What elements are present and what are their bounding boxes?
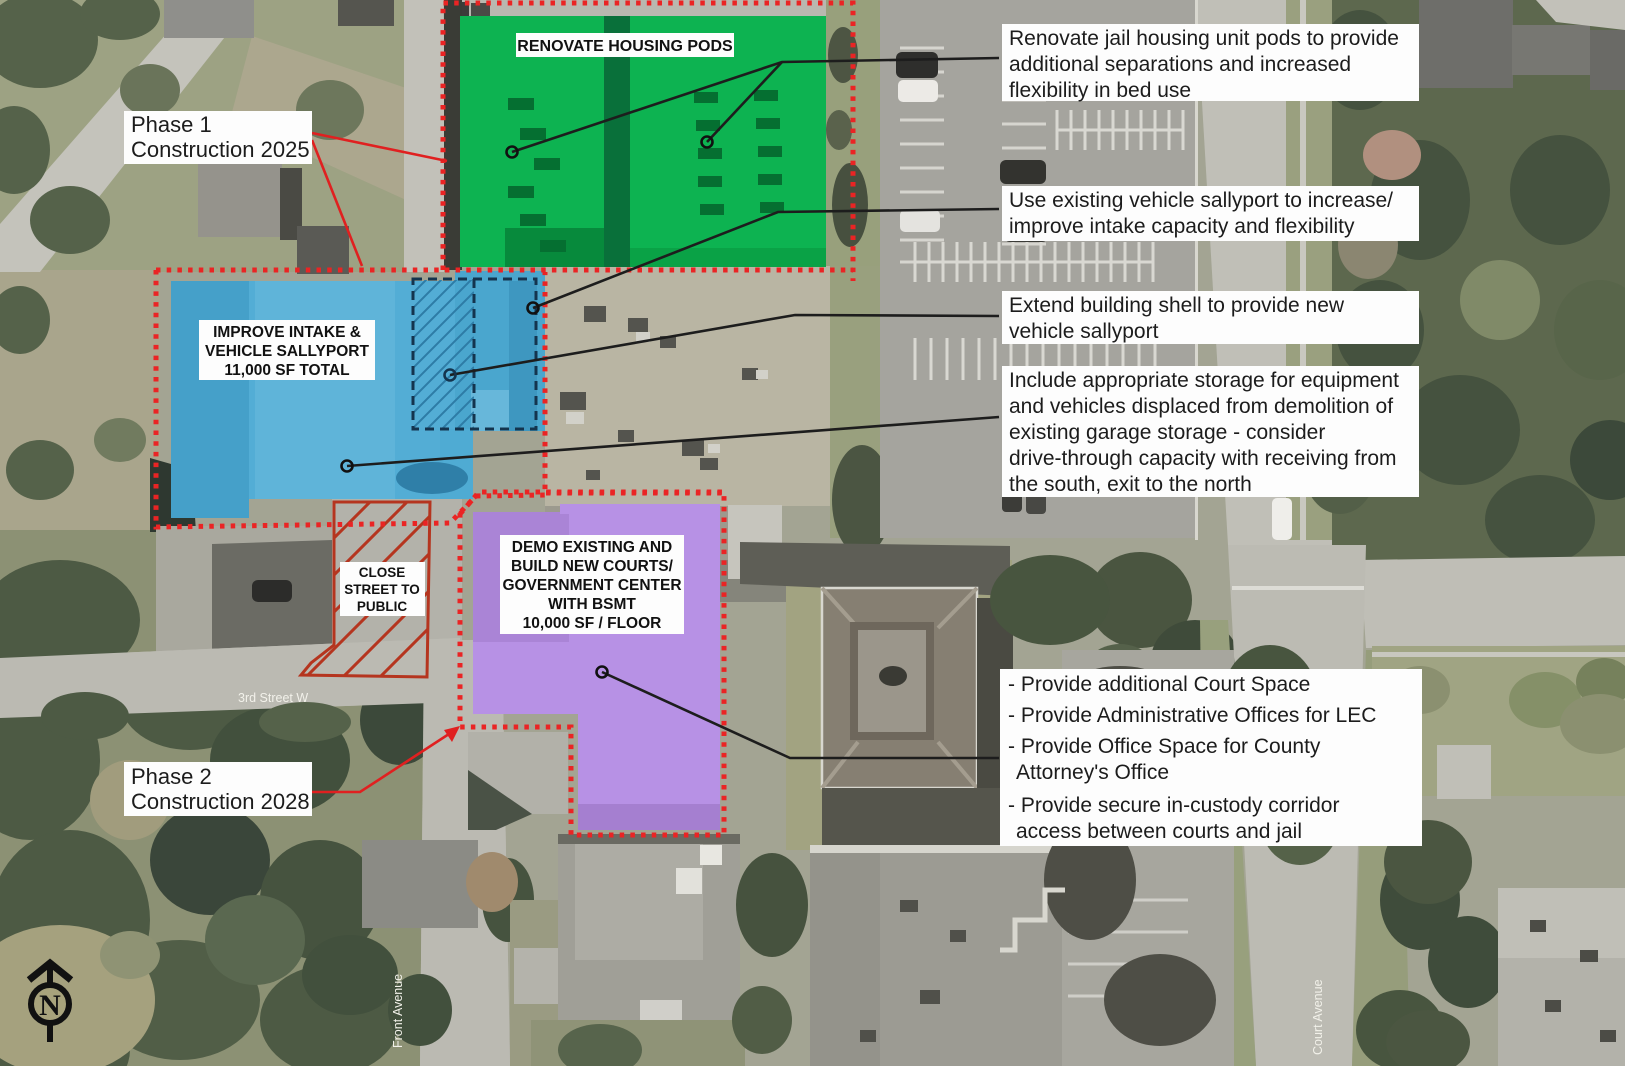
svg-text:improve intake capacity and fl: improve intake capacity and flexibility <box>1009 215 1355 238</box>
svg-text:PUBLIC: PUBLIC <box>357 599 408 614</box>
svg-text:Use existing vehicle sallyport: Use existing vehicle sallyport to increa… <box>1009 189 1393 212</box>
svg-text:N: N <box>39 989 61 1022</box>
svg-text:WITH BSMT: WITH BSMT <box>548 596 636 613</box>
svg-text:GOVERNMENT CENTER: GOVERNMENT CENTER <box>502 577 681 594</box>
svg-text:additional separations and inc: additional separations and increased <box>1009 53 1351 76</box>
svg-text:VEHICLE SALLYPORT: VEHICLE SALLYPORT <box>205 343 369 360</box>
svg-text:- Provide additional Court Spa: - Provide additional Court Space <box>1008 673 1310 696</box>
svg-text:access between courts and jail: access between courts and jail <box>1016 820 1302 843</box>
svg-text:flexibility in bed use: flexibility in bed use <box>1009 79 1191 102</box>
svg-text:CLOSE: CLOSE <box>359 565 406 580</box>
svg-text:RENOVATE HOUSING PODS: RENOVATE HOUSING PODS <box>517 38 733 55</box>
svg-text:BUILD NEW COURTS/: BUILD NEW COURTS/ <box>511 558 674 575</box>
svg-text:Construction 2028: Construction 2028 <box>131 789 310 814</box>
svg-text:11,000 SF TOTAL: 11,000 SF TOTAL <box>224 362 349 379</box>
svg-text:- Provide secure in-custody co: - Provide secure in-custody corridor <box>1008 794 1339 817</box>
svg-text:DEMO EXISTING AND: DEMO EXISTING AND <box>512 539 672 556</box>
svg-text:vehicle sallyport: vehicle sallyport <box>1009 320 1159 343</box>
svg-text:Phase 1: Phase 1 <box>131 112 212 137</box>
svg-text:the south, exit to the north: the south, exit to the north <box>1009 473 1252 496</box>
svg-text:10,000 SF / FLOOR: 10,000 SF / FLOOR <box>523 615 662 632</box>
svg-text:Attorney's Office: Attorney's Office <box>1016 761 1169 784</box>
svg-text:STREET TO: STREET TO <box>344 582 420 597</box>
svg-text:Front Avenue: Front Avenue <box>391 974 405 1048</box>
svg-text:drive-through capacity with re: drive-through capacity with receiving fr… <box>1009 447 1397 470</box>
svg-text:3rd Street W: 3rd Street W <box>238 691 308 705</box>
svg-text:Phase 2: Phase 2 <box>131 764 212 789</box>
svg-text:Construction 2025: Construction 2025 <box>131 137 310 162</box>
svg-text:Renovate jail housing unit pod: Renovate jail housing unit pods to provi… <box>1009 27 1399 50</box>
svg-text:existing garage storage - cons: existing garage storage - consider <box>1009 421 1325 444</box>
svg-text:- Provide Office Space for Cou: - Provide Office Space for County <box>1008 735 1321 758</box>
svg-text:IMPROVE INTAKE &: IMPROVE INTAKE & <box>213 324 361 341</box>
svg-text:and vehicles displaced from de: and vehicles displaced from demolition o… <box>1009 395 1393 418</box>
svg-text:Court Avenue: Court Avenue <box>1311 979 1325 1055</box>
svg-text:Extend building shell to provi: Extend building shell to provide new <box>1009 294 1345 317</box>
svg-text:Include appropriate storage fo: Include appropriate storage for equipmen… <box>1009 369 1399 392</box>
svg-text:- Provide Administrative Offic: - Provide Administrative Offices for LEC <box>1008 704 1376 727</box>
